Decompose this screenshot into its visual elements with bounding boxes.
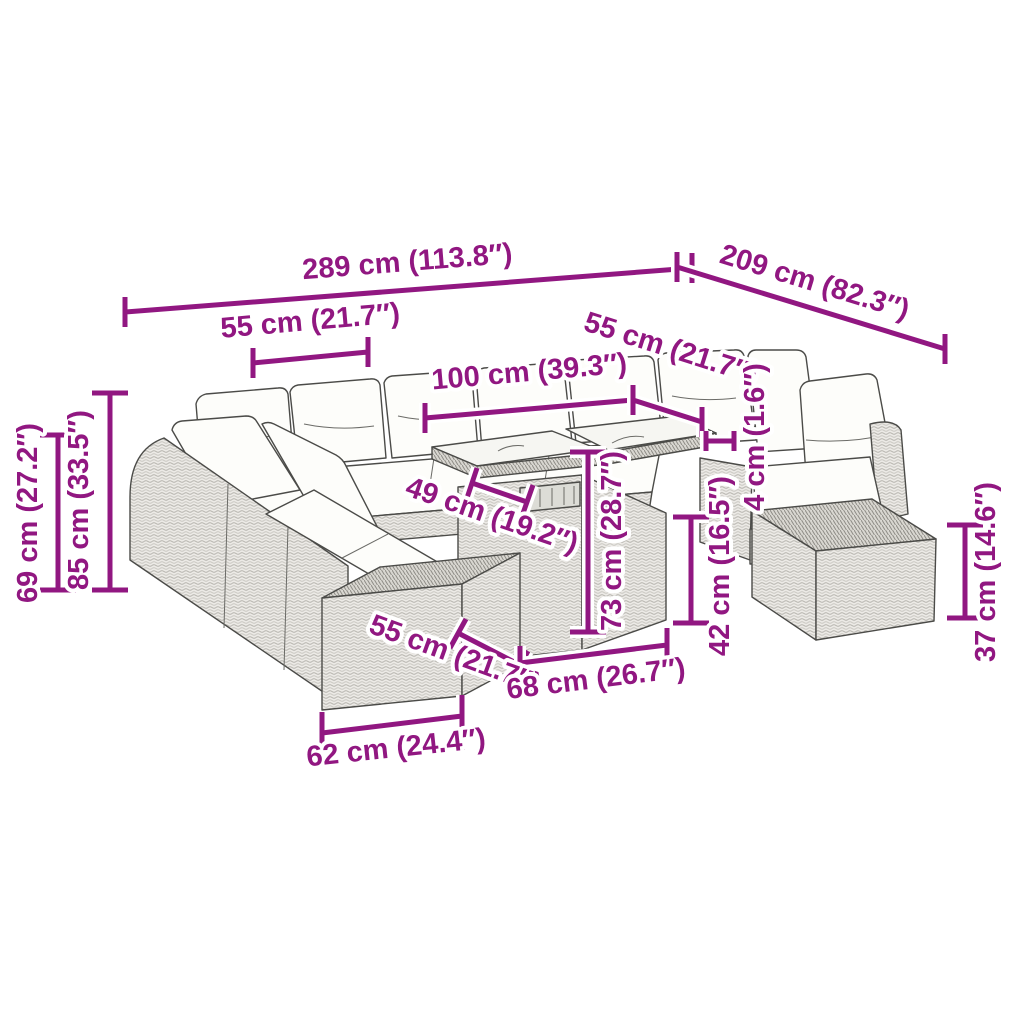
diagram-canvas: 289 cm (113.8″) 209 cm (82.3″) 55 cm (21… (0, 0, 1024, 1024)
dimension-back-seat-width (253, 337, 368, 378)
dimension-diagram: 289 cm (113.8″) 209 cm (82.3″) 55 cm (21… (0, 0, 1024, 1024)
footstool-right (752, 499, 936, 640)
dimension-total-height (92, 393, 128, 590)
label-cushion-gap: 4 cm (1.6″) (739, 363, 771, 511)
label-footstool-height: 37 cm (14.6″) (970, 482, 1002, 662)
label-seat-back-height: 69 cm (27.2″) (12, 423, 44, 603)
label-table-height: 73 cm (28.7″) (596, 451, 628, 631)
label-total-height: 85 cm (33.5″) (63, 410, 95, 590)
label-seat-height: 42 cm (16.5″) (704, 476, 736, 656)
